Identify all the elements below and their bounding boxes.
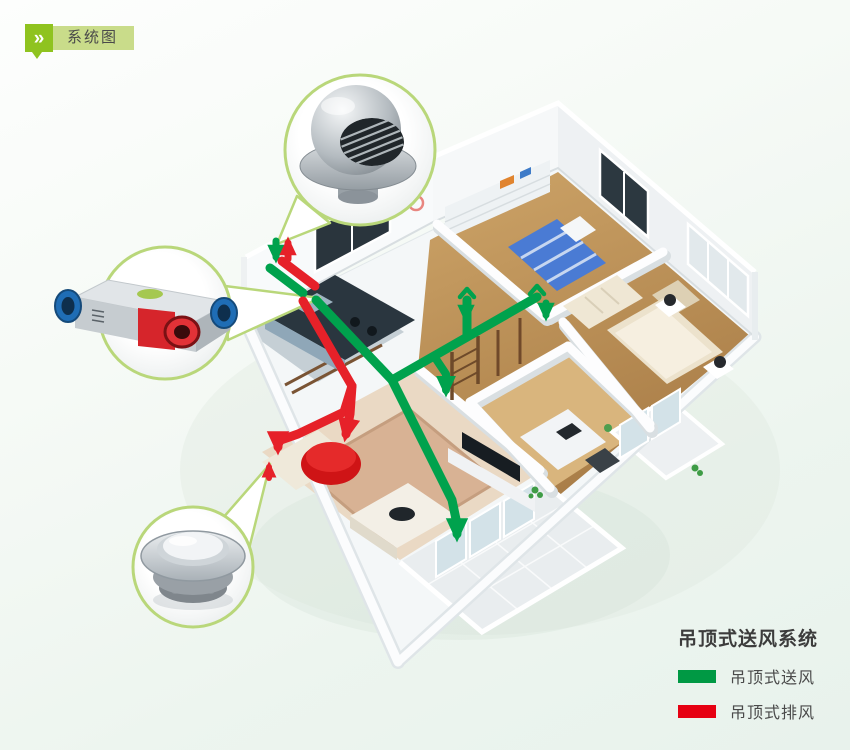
section-badge-label: 系统图 [53,26,134,50]
ceiling-diffuser-icon [141,531,245,610]
legend-title: 吊顶式送风系统 [678,624,848,651]
legend-item-exhaust: 吊顶式排风 [678,699,848,723]
chevron-double-icon: » [25,24,53,52]
supply-label: 吊顶式送风 [730,664,815,688]
section-badge: » 系统图 [25,24,134,52]
legend: 吊顶式送风系统 吊顶式送风 吊顶式排风 [678,624,848,734]
exhaust-label: 吊顶式排风 [730,699,815,723]
supply-color-swatch [678,670,716,683]
exhaust-color-swatch [678,705,716,718]
legend-item-supply: 吊顶式送风 [678,664,848,688]
